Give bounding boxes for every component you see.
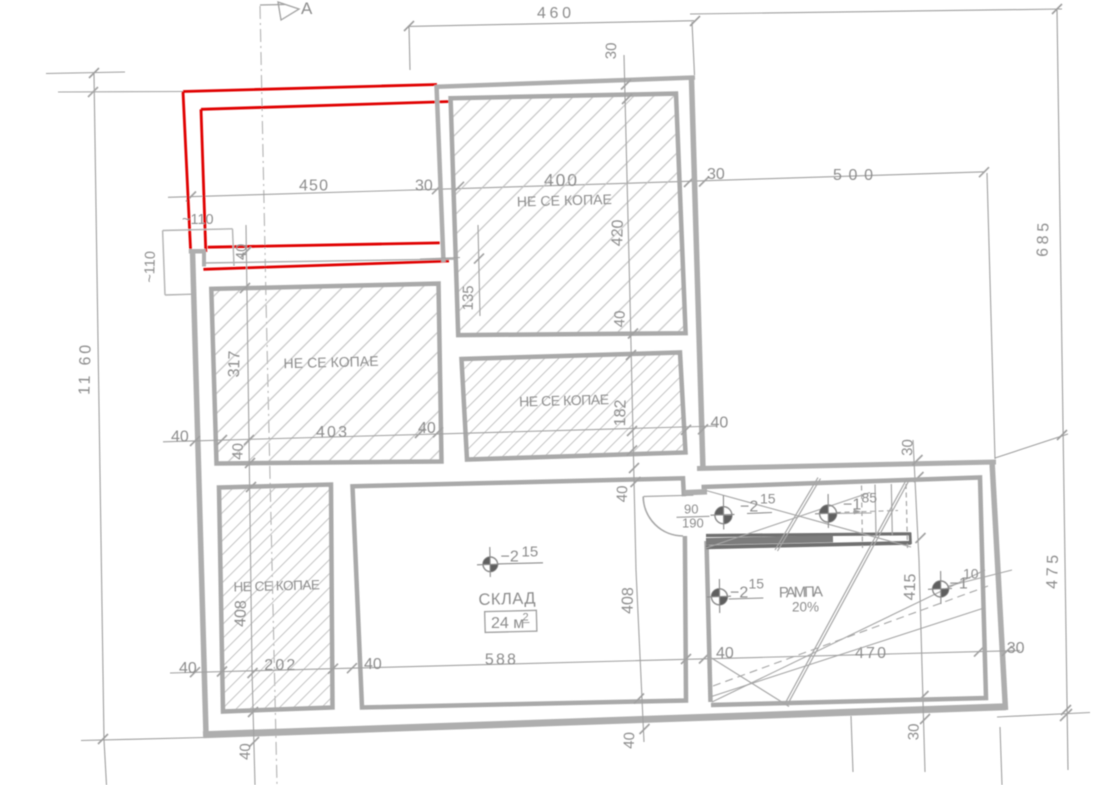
svg-text:40: 40 xyxy=(179,660,197,677)
svg-text:450: 450 xyxy=(299,178,328,195)
svg-text:A: A xyxy=(301,0,313,18)
svg-text:90: 90 xyxy=(684,502,698,517)
svg-text:НЕ СЕ КОПАЕ: НЕ СЕ КОПАЕ xyxy=(283,353,380,372)
svg-text:2: 2 xyxy=(523,612,529,624)
svg-text:~110: ~110 xyxy=(182,212,214,228)
svg-text:317: 317 xyxy=(226,350,244,377)
svg-text:40: 40 xyxy=(614,485,631,502)
svg-text:420: 420 xyxy=(609,219,627,246)
svg-text:15: 15 xyxy=(522,544,539,561)
svg-text:~110: ~110 xyxy=(142,251,159,283)
svg-text:460: 460 xyxy=(537,5,571,22)
svg-text:40: 40 xyxy=(418,420,436,437)
svg-text:190: 190 xyxy=(682,516,704,531)
svg-text:−2: −2 xyxy=(501,549,519,566)
svg-text:85: 85 xyxy=(862,490,878,506)
svg-text:−2: −2 xyxy=(730,585,748,602)
svg-text:40: 40 xyxy=(234,244,250,261)
svg-text:30: 30 xyxy=(415,178,433,195)
svg-text:−1: −1 xyxy=(843,497,861,514)
svg-text:475: 475 xyxy=(1044,555,1062,590)
svg-text:НЕ СЕ КОПАЕ: НЕ СЕ КОПАЕ xyxy=(517,191,614,210)
svg-text:СКЛАД: СКЛАД xyxy=(478,590,535,609)
svg-text:30: 30 xyxy=(1007,640,1025,657)
svg-text:30: 30 xyxy=(707,166,725,183)
svg-text:15: 15 xyxy=(749,576,765,592)
svg-text:40: 40 xyxy=(621,732,638,749)
svg-text:182: 182 xyxy=(612,399,630,426)
svg-text:10: 10 xyxy=(963,566,979,582)
svg-text:11 60: 11 60 xyxy=(76,345,94,396)
svg-text:15: 15 xyxy=(760,491,776,507)
svg-text:408: 408 xyxy=(619,587,637,614)
svg-text:20%: 20% xyxy=(792,600,819,615)
svg-text:40: 40 xyxy=(364,656,382,673)
svg-text:40: 40 xyxy=(237,743,254,760)
svg-text:588: 588 xyxy=(485,652,516,669)
svg-text:40: 40 xyxy=(711,415,729,432)
svg-text:30: 30 xyxy=(899,439,916,456)
svg-text:135: 135 xyxy=(460,285,478,310)
svg-text:40: 40 xyxy=(611,310,628,327)
svg-text:40: 40 xyxy=(716,645,734,662)
svg-text:30: 30 xyxy=(905,723,922,740)
svg-text:НЕ СЕ КОПАЕ: НЕ СЕ КОПАЕ xyxy=(233,577,321,594)
svg-text:30: 30 xyxy=(603,42,620,59)
svg-text:НЕ СЕ КОПАЕ: НЕ СЕ КОПАЕ xyxy=(519,391,611,409)
svg-text:415: 415 xyxy=(902,573,920,600)
svg-text:−2: −2 xyxy=(740,499,758,516)
svg-text:500: 500 xyxy=(833,167,873,184)
svg-text:24 м: 24 м xyxy=(491,615,524,632)
svg-text:40: 40 xyxy=(171,429,189,446)
svg-text:403: 403 xyxy=(316,424,347,441)
svg-text:40: 40 xyxy=(229,443,246,460)
svg-text:685: 685 xyxy=(1035,223,1053,258)
svg-text:202: 202 xyxy=(264,657,295,674)
svg-text:408: 408 xyxy=(232,600,250,627)
svg-text:470: 470 xyxy=(855,645,886,662)
